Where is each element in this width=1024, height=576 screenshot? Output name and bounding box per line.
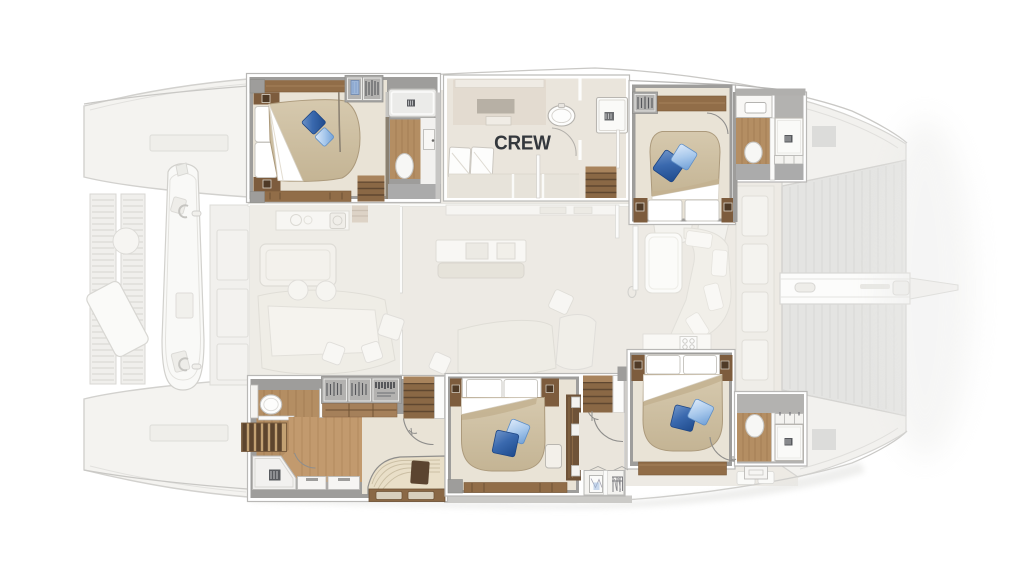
svg-text:CREW: CREW: [494, 132, 551, 155]
